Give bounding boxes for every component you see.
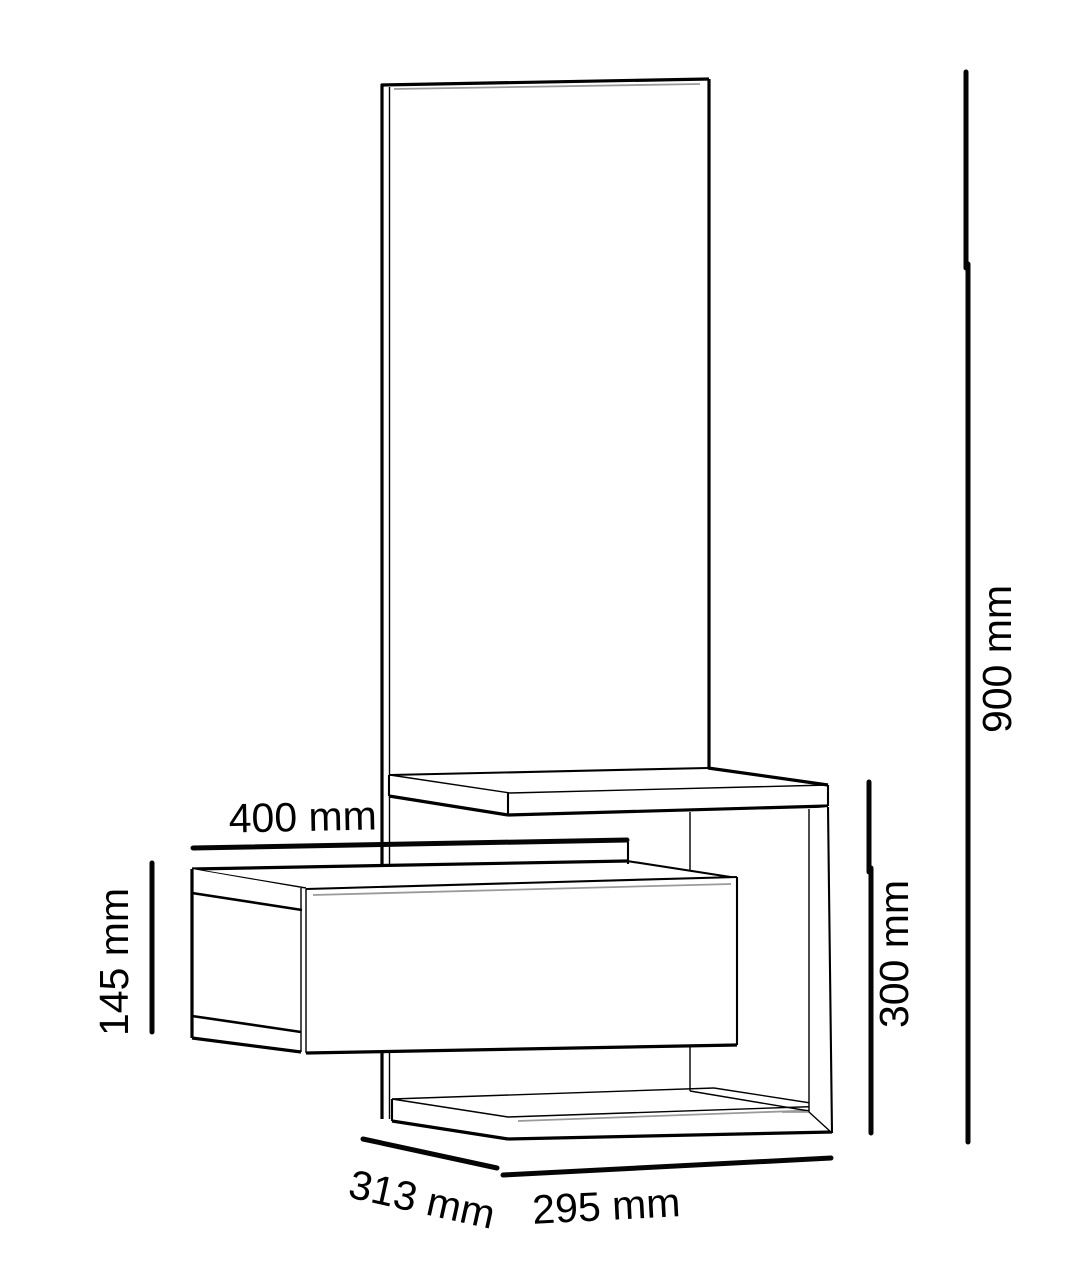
dimension-label-900: 900 mm <box>974 585 1020 733</box>
right-side-panel <box>809 807 832 1133</box>
dimension-label-295: 295 mm <box>531 1179 681 1233</box>
drawer-front-face <box>306 877 737 1053</box>
dimension-drawing-page: 400 mm 145 mm 900 mm 300 mm 313 mm 295 m… <box>0 0 1090 1284</box>
dimension-line-313 <box>363 1139 497 1168</box>
drawer <box>192 842 737 1053</box>
dimension-label-300: 300 mm <box>871 880 917 1028</box>
dimension-line-400 <box>193 840 627 848</box>
dimension-line-295 <box>503 1158 831 1175</box>
bottom-shelf <box>392 1088 832 1139</box>
top-shelf <box>389 768 828 816</box>
dimension-label-400: 400 mm <box>228 792 377 841</box>
dimension-label-145: 145 mm <box>91 888 137 1036</box>
furniture-dimension-drawing: 400 mm 145 mm 900 mm 300 mm 313 mm 295 m… <box>0 0 1090 1284</box>
dimension-label-313: 313 mm <box>345 1161 500 1238</box>
